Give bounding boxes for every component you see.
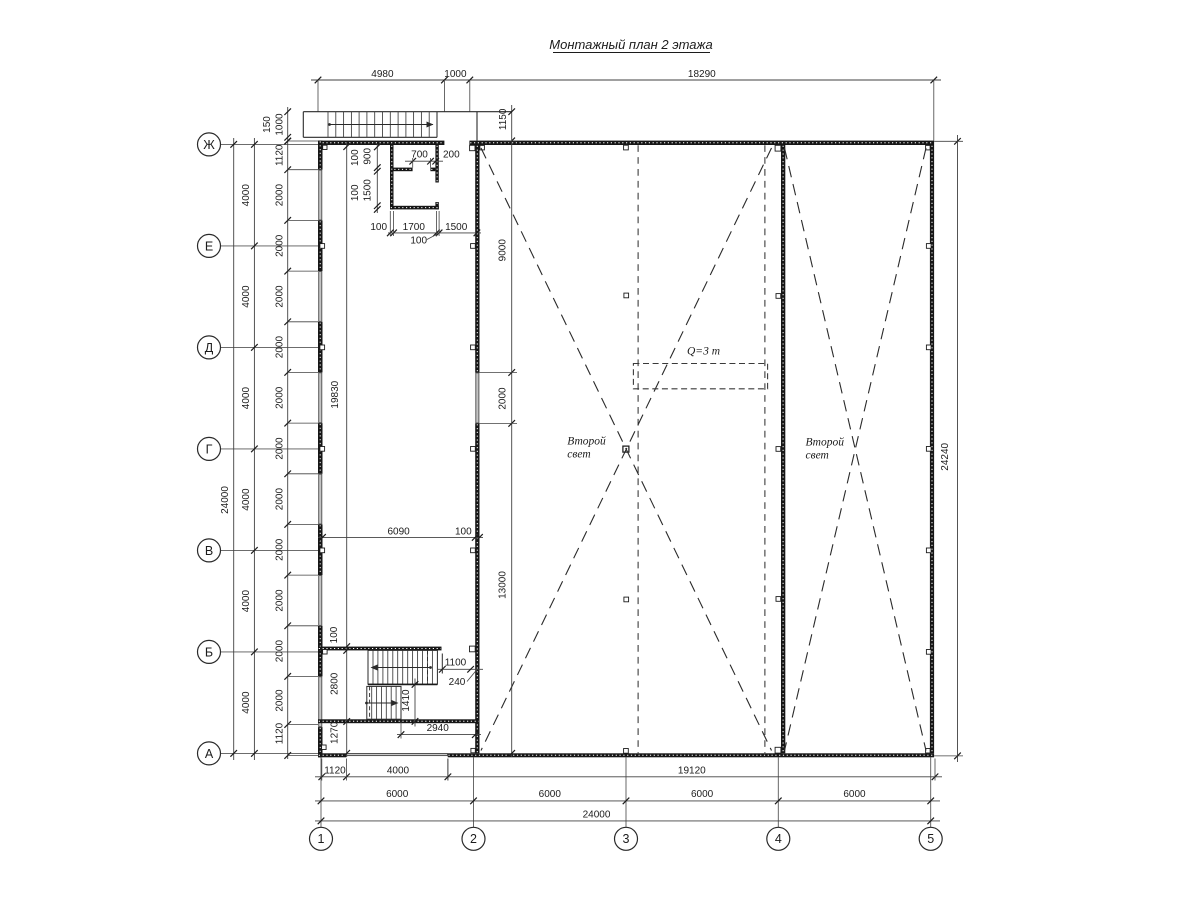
svg-text:24240: 24240 (940, 442, 951, 470)
svg-text:2000: 2000 (274, 184, 285, 207)
svg-text:100: 100 (350, 149, 361, 166)
svg-text:2: 2 (470, 832, 477, 846)
svg-text:Второй: Второй (806, 436, 845, 449)
svg-text:3: 3 (623, 832, 630, 846)
svg-text:6000: 6000 (386, 789, 409, 800)
svg-text:2000: 2000 (274, 285, 285, 308)
svg-text:А: А (205, 747, 214, 761)
svg-text:1120: 1120 (324, 765, 346, 776)
svg-text:свет: свет (806, 450, 829, 462)
svg-text:6090: 6090 (387, 526, 410, 537)
svg-text:4000: 4000 (387, 765, 410, 776)
svg-text:2800: 2800 (330, 672, 341, 695)
svg-text:Б: Б (205, 645, 213, 659)
svg-text:Е: Е (205, 239, 213, 253)
svg-text:Q=3 т: Q=3 т (687, 346, 720, 358)
svg-text:1700: 1700 (403, 222, 426, 233)
svg-text:100: 100 (455, 526, 472, 537)
svg-text:2000: 2000 (274, 538, 285, 561)
svg-text:1000: 1000 (444, 69, 467, 80)
svg-text:Д: Д (205, 341, 214, 355)
svg-text:100: 100 (350, 184, 361, 201)
svg-text:13000: 13000 (498, 571, 509, 599)
svg-text:1: 1 (318, 832, 325, 846)
svg-text:2000: 2000 (498, 387, 509, 410)
svg-text:6000: 6000 (843, 789, 866, 800)
svg-text:4000: 4000 (241, 488, 252, 511)
svg-text:1120: 1120 (274, 144, 285, 166)
svg-text:1000: 1000 (274, 113, 285, 136)
svg-text:150: 150 (262, 116, 273, 133)
svg-text:Монтажный план 2 этажа: Монтажный план 2 этажа (549, 37, 712, 52)
svg-text:19120: 19120 (678, 765, 706, 776)
svg-text:6000: 6000 (691, 789, 714, 800)
svg-text:2940: 2940 (427, 723, 450, 734)
svg-text:900: 900 (363, 148, 374, 165)
svg-text:1150: 1150 (498, 108, 509, 130)
svg-text:Ж: Ж (203, 138, 215, 152)
svg-text:2000: 2000 (274, 437, 285, 460)
svg-text:700: 700 (411, 150, 428, 161)
svg-text:1270: 1270 (330, 721, 341, 744)
svg-text:4: 4 (775, 832, 782, 846)
svg-text:9000: 9000 (498, 239, 509, 262)
svg-text:1500: 1500 (363, 179, 374, 202)
svg-text:2000: 2000 (274, 640, 285, 663)
svg-text:2000: 2000 (274, 488, 285, 511)
svg-text:4000: 4000 (241, 285, 252, 308)
svg-text:В: В (205, 544, 213, 558)
svg-text:2000: 2000 (274, 386, 285, 409)
svg-text:18290: 18290 (688, 69, 716, 80)
svg-text:4000: 4000 (241, 691, 252, 714)
svg-text:100: 100 (370, 222, 387, 233)
svg-text:200: 200 (443, 150, 460, 161)
svg-text:Второй: Второй (567, 435, 606, 448)
svg-text:5: 5 (927, 832, 934, 846)
svg-text:24000: 24000 (583, 809, 611, 820)
svg-text:4980: 4980 (371, 69, 394, 80)
svg-text:24000: 24000 (220, 486, 231, 514)
svg-text:1120: 1120 (274, 722, 285, 744)
svg-text:19830: 19830 (330, 380, 341, 408)
svg-text:свет: свет (567, 449, 590, 461)
svg-text:4000: 4000 (241, 387, 252, 410)
svg-text:240: 240 (449, 677, 466, 688)
svg-text:2000: 2000 (274, 689, 285, 712)
svg-text:100: 100 (410, 235, 427, 246)
svg-text:2000: 2000 (274, 336, 285, 359)
svg-text:2000: 2000 (274, 589, 285, 612)
svg-text:2000: 2000 (274, 234, 285, 257)
svg-text:100: 100 (329, 626, 340, 643)
svg-text:1410: 1410 (401, 689, 412, 712)
svg-text:1100: 1100 (445, 657, 467, 668)
svg-text:Г: Г (206, 442, 213, 456)
svg-text:1500: 1500 (445, 222, 468, 233)
svg-text:6000: 6000 (539, 789, 562, 800)
svg-text:4000: 4000 (241, 184, 252, 207)
svg-text:4000: 4000 (241, 590, 252, 613)
